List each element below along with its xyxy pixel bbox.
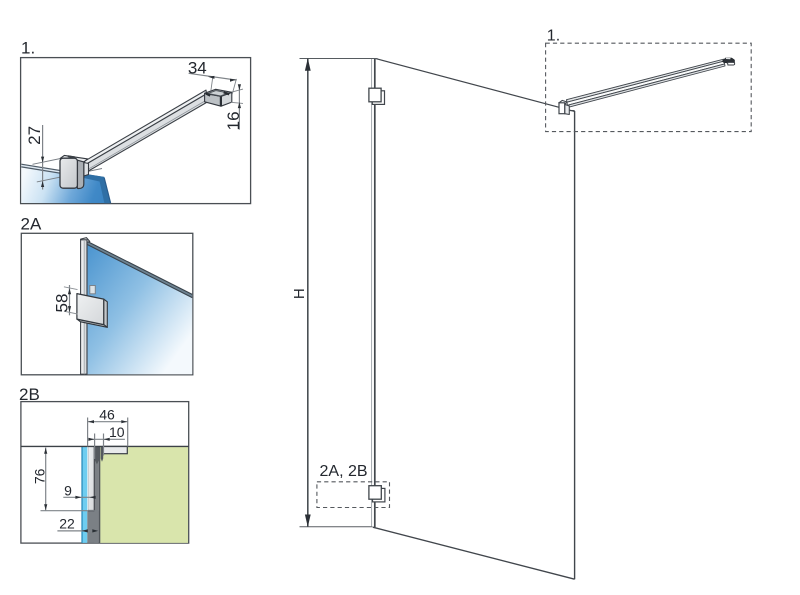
svg-text:2A: 2A xyxy=(21,215,42,234)
svg-text:1.: 1. xyxy=(21,39,35,58)
svg-text:58: 58 xyxy=(53,294,72,313)
svg-text:10: 10 xyxy=(109,424,125,440)
svg-text:9: 9 xyxy=(64,482,72,498)
svg-text:16: 16 xyxy=(224,111,243,130)
svg-text:46: 46 xyxy=(99,406,115,422)
svg-text:2B: 2B xyxy=(19,385,40,404)
svg-text:34: 34 xyxy=(188,59,207,78)
svg-text:76: 76 xyxy=(32,468,48,484)
svg-text:H: H xyxy=(291,288,308,299)
svg-text:1.: 1. xyxy=(547,28,560,45)
svg-text:27: 27 xyxy=(25,126,44,145)
svg-text:22: 22 xyxy=(59,516,75,532)
svg-text:2A, 2B: 2A, 2B xyxy=(320,463,368,480)
